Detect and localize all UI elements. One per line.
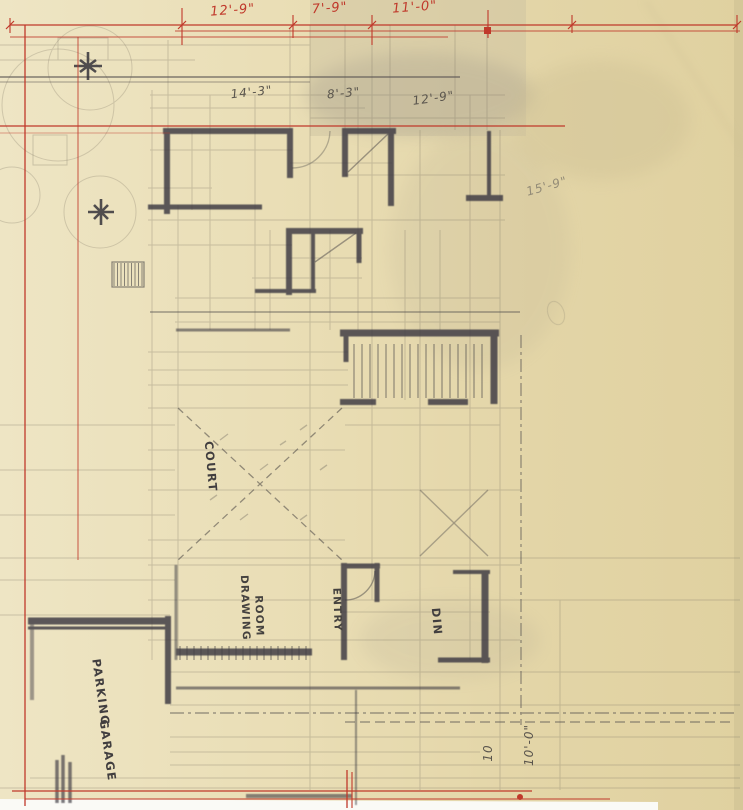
room-label-dining: DIN (429, 607, 445, 636)
room-label-drawing: DRAWING (238, 575, 252, 641)
room-label-drawing-2: ROOM (252, 595, 265, 637)
dimension-pencil-6: 10 (481, 744, 495, 761)
dimension-pencil-5: 10'-0" (522, 724, 536, 766)
dimension-red-1: 12'-9" (210, 1, 256, 19)
floor-plan-sketch: 12'-9" 7'-9" 11'-0" 14'-3" 8'-3" 12'-9" … (0, 0, 743, 810)
dimension-pencil-2: 8'-3" (326, 85, 361, 102)
dimension-red-2: 7'-9" (311, 0, 348, 17)
room-label-entry: ENTRY (330, 588, 344, 633)
red-marker-dot (484, 27, 491, 34)
red-marker-dot (517, 794, 523, 800)
sketch-canvas: 12'-9" 7'-9" 11'-0" 14'-3" 8'-3" 12'-9" … (0, 0, 743, 810)
